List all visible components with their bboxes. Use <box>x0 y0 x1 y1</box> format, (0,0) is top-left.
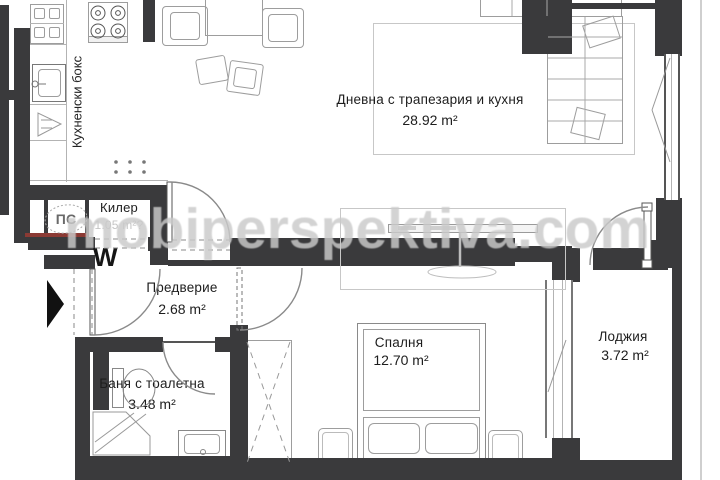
wall-segment <box>143 0 155 42</box>
wall-segment <box>75 337 163 352</box>
appliance-triangle-icon <box>38 113 61 136</box>
counter-line <box>28 104 67 105</box>
wall-segment <box>672 268 682 480</box>
door-swing-arc <box>240 268 302 330</box>
watermark: mobiperspektiva.com <box>64 196 650 262</box>
room-label-bedroom: Спалня <box>375 335 423 350</box>
door-leaf-dashed <box>237 268 242 330</box>
bath-sink-basin <box>184 434 220 454</box>
cabinet-door <box>34 8 45 19</box>
bed-pillow <box>425 423 478 454</box>
counter-line <box>28 180 168 181</box>
dining-chair-seat <box>170 12 200 40</box>
room-area-loggia: 3.72 m² <box>601 347 648 363</box>
dining-table <box>205 0 263 36</box>
cabinet-door <box>34 27 45 38</box>
dot-grid-icon <box>114 160 146 174</box>
room-label-kitchenette: Кухненски бокс <box>70 56 85 148</box>
room-area-bedroom: 12.70 m² <box>373 352 428 368</box>
cabinet-door <box>49 27 60 38</box>
nightstand-inner <box>322 432 349 461</box>
counter-line <box>28 140 67 141</box>
wall-segment <box>0 5 9 215</box>
kitchen-cabinet-divider <box>30 23 64 24</box>
kitchen-sink-basin <box>38 69 61 97</box>
armchair-seat <box>233 67 258 90</box>
wall-segment <box>228 458 554 480</box>
counter-edge <box>66 0 67 182</box>
shower-icon <box>93 412 150 455</box>
bed-pillow <box>368 423 420 454</box>
room-label-bathroom: Баня с тоалетна <box>99 376 205 391</box>
glazing-line <box>562 280 563 438</box>
window <box>664 54 680 200</box>
room-label-loggia: Лоджия <box>598 329 647 344</box>
door-swing-arc <box>94 269 160 335</box>
room-area-bathroom: 3.48 m² <box>128 396 175 412</box>
balcony-door-glazing <box>545 280 573 438</box>
room-label-living: Дневна с трапезария и кухня <box>336 92 523 107</box>
wall-segment <box>655 0 682 56</box>
plot-boundary-line <box>700 0 702 480</box>
counter-line <box>28 44 67 45</box>
wall-segment <box>75 456 230 480</box>
window-mullion <box>671 54 672 200</box>
room-area-living: 28.92 m² <box>402 112 457 128</box>
wall-segment <box>44 195 48 238</box>
wall-segment <box>522 0 572 54</box>
stove-front-band <box>88 36 128 43</box>
glazing-line <box>553 280 554 438</box>
wall-segment <box>552 460 680 480</box>
wardrobe <box>245 340 292 465</box>
door-leaf <box>90 269 95 335</box>
dining-chair-seat <box>268 14 298 42</box>
wall-segment <box>14 28 30 243</box>
wall-segment <box>215 337 235 352</box>
entrance-arrow-icon <box>47 280 64 328</box>
room-label-hall: Предверие <box>146 280 217 295</box>
room-area-hall: 2.68 m² <box>158 301 205 317</box>
stool <box>195 55 229 86</box>
floor-plan: Дневна с трапезария и кухня 28.92 m² Кух… <box>0 0 720 480</box>
wall-segment <box>570 3 657 9</box>
wall-segment <box>75 337 90 458</box>
cabinet-door <box>49 8 60 19</box>
